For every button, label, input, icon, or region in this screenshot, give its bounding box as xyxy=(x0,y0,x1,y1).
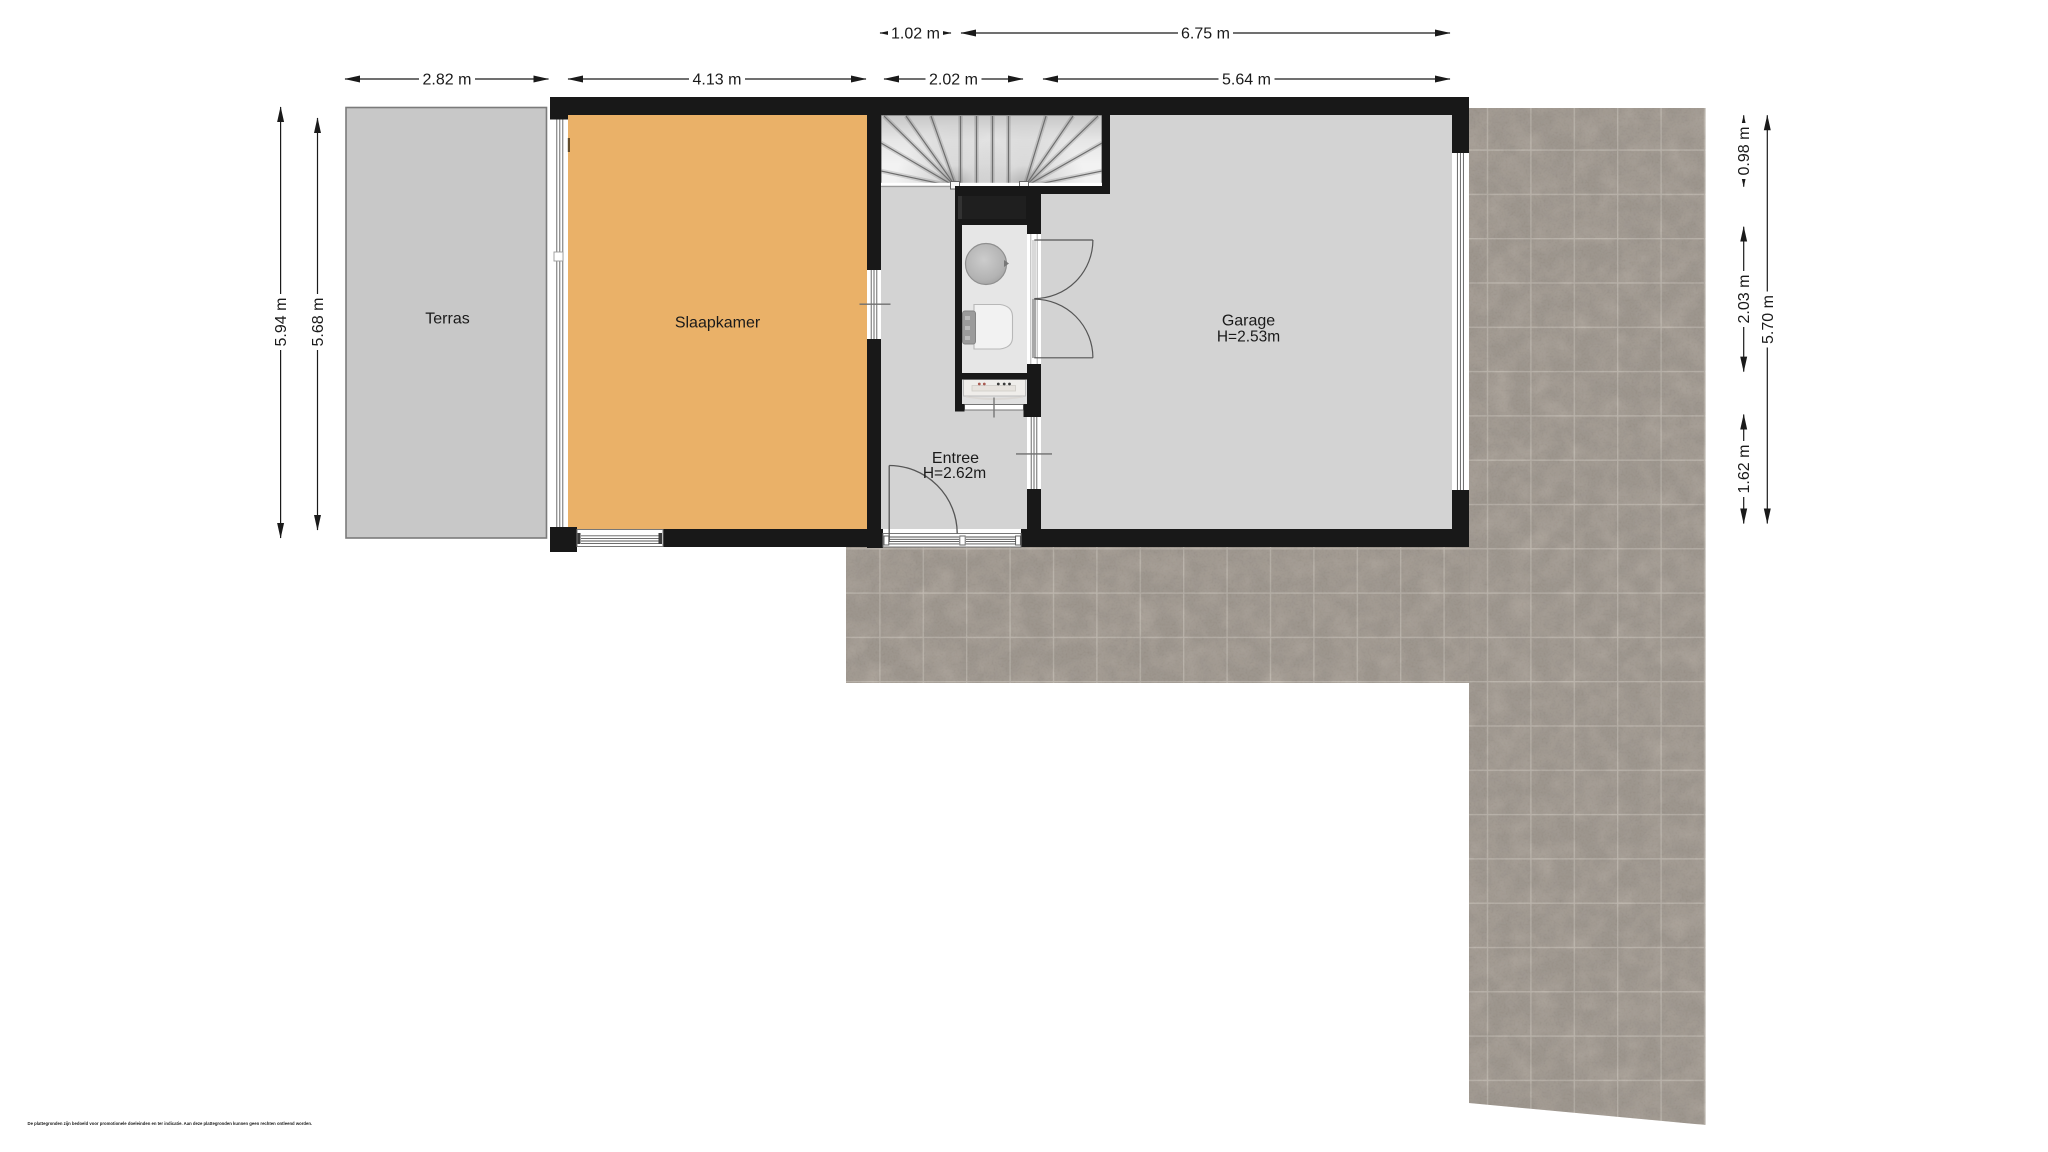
svg-text:H=2.62m: H=2.62m xyxy=(923,465,986,482)
svg-text:2.02 m: 2.02 m xyxy=(929,72,978,89)
svg-text:0.98 m: 0.98 m xyxy=(1736,127,1753,176)
svg-text:2.03 m: 2.03 m xyxy=(1736,275,1753,324)
svg-text:H=2.53m: H=2.53m xyxy=(1217,329,1280,346)
svg-text:Garage: Garage xyxy=(1222,313,1275,330)
svg-text:Slaapkamer: Slaapkamer xyxy=(675,315,761,332)
svg-text:5.70 m: 5.70 m xyxy=(1760,295,1777,344)
svg-text:Terras: Terras xyxy=(425,311,469,328)
svg-text:De plattegronden zijn bedoeld: De plattegronden zijn bedoeld voor promo… xyxy=(28,1121,313,1126)
svg-text:5.68 m: 5.68 m xyxy=(310,298,327,347)
svg-text:4.13 m: 4.13 m xyxy=(693,72,742,89)
svg-text:5.94 m: 5.94 m xyxy=(273,298,290,347)
svg-text:6.75 m: 6.75 m xyxy=(1181,26,1230,43)
svg-text:1.02 m: 1.02 m xyxy=(891,26,940,43)
svg-text:1.62 m: 1.62 m xyxy=(1736,445,1753,494)
svg-text:5.64 m: 5.64 m xyxy=(1222,72,1271,89)
svg-text:2.82 m: 2.82 m xyxy=(423,72,472,89)
